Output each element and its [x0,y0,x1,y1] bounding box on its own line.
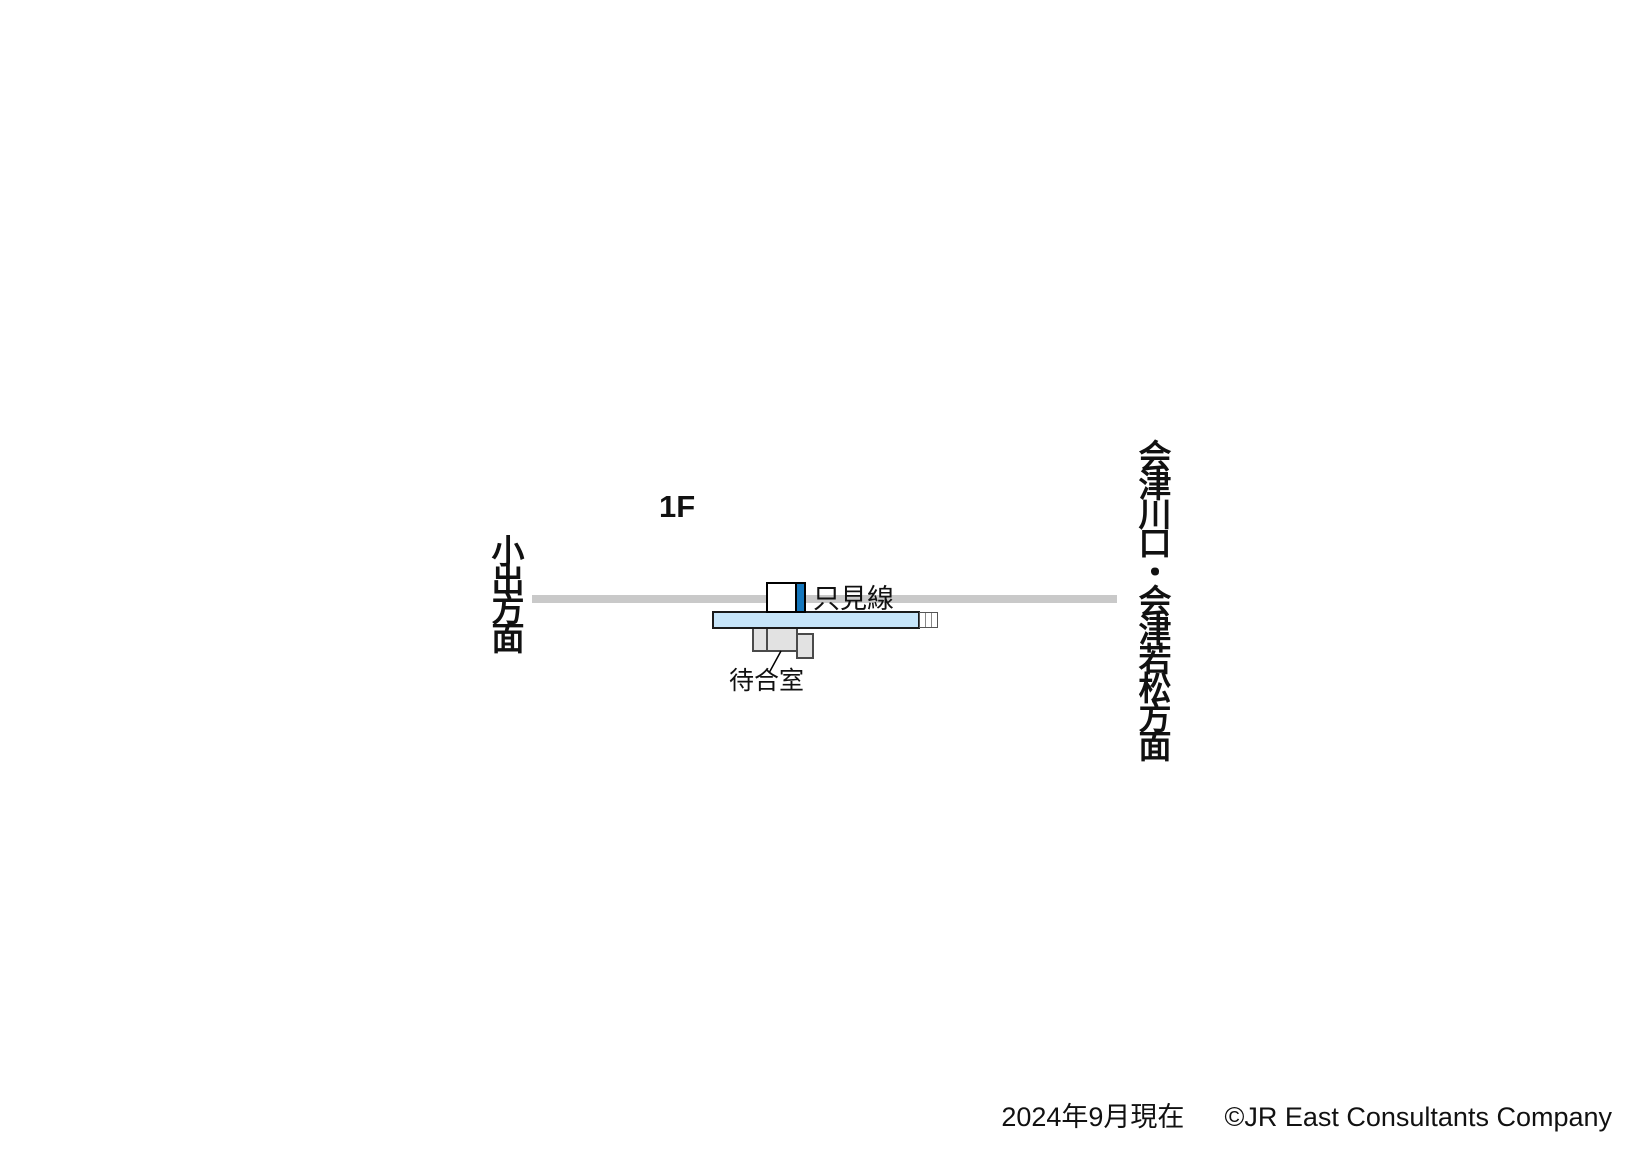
waiting-room-structure [796,633,814,659]
floor-label: 1F [659,491,695,522]
footer: 2024年9月現在 ©JR East Consultants Company [1001,1102,1612,1132]
station-building [766,582,797,613]
footer-date: 2024年9月現在 [1001,1102,1184,1132]
footer-copyright: ©JR East Consultants Company [1224,1102,1612,1132]
station-map-canvas: 1F 小出方面 会津川口・会津若松方面 只見線 待合室 2024年9月現在 ©J… [0,0,1642,1162]
tadami-line-marker [795,582,806,613]
ramp-stripe [932,613,937,627]
waiting-room-structure [766,627,798,652]
waiting-room-label: 待合室 [729,668,804,694]
platform-ramp [919,612,938,628]
line-label-tadami: 只見線 [813,586,894,613]
direction-label-koide: 小出方面 [481,534,529,650]
direction-label-aizukawaguchi-aizuwakamatsu: 会津川口・会津若松方面 [1128,439,1176,758]
